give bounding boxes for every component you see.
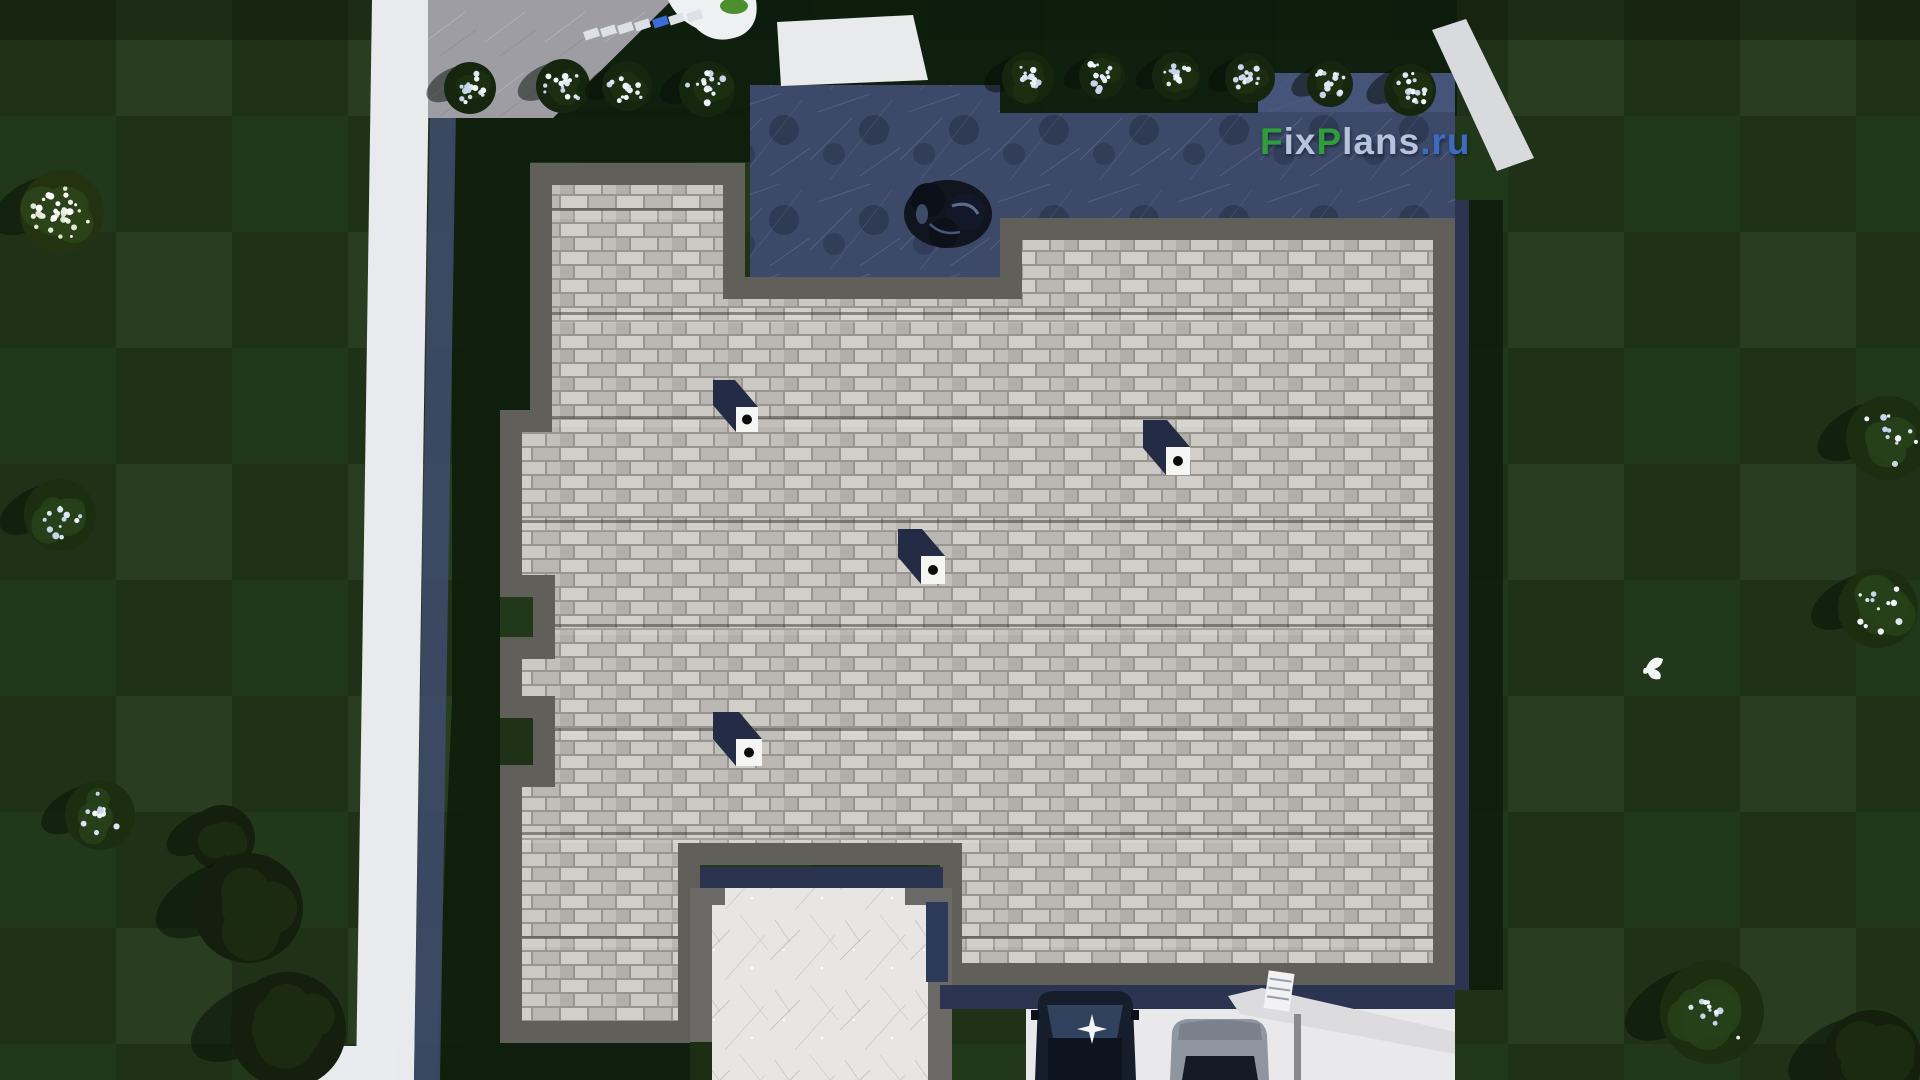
aerial-site-render: FixPlans.ru <box>0 0 1920 1080</box>
house-roof <box>480 140 1480 1060</box>
ac-unit <box>1263 970 1294 1011</box>
watermark-part: P <box>1316 121 1342 163</box>
fixplans-watermark: FixPlans.ru <box>1260 121 1470 163</box>
car-dark <box>1031 991 1139 1080</box>
white-patio <box>690 867 952 1080</box>
watermark-part: .ru <box>1420 121 1470 163</box>
watermark-part: ix <box>1284 121 1317 163</box>
porch-post <box>1294 1014 1301 1080</box>
white-paved-path <box>777 15 928 86</box>
watermark-part: F <box>1260 121 1284 163</box>
terrace-furniture <box>904 180 992 248</box>
site-plan-canvas <box>0 0 1920 1080</box>
watermark-part: lans <box>1342 121 1420 163</box>
car-gray <box>1170 1019 1269 1080</box>
wall-shadow <box>940 985 1455 1009</box>
